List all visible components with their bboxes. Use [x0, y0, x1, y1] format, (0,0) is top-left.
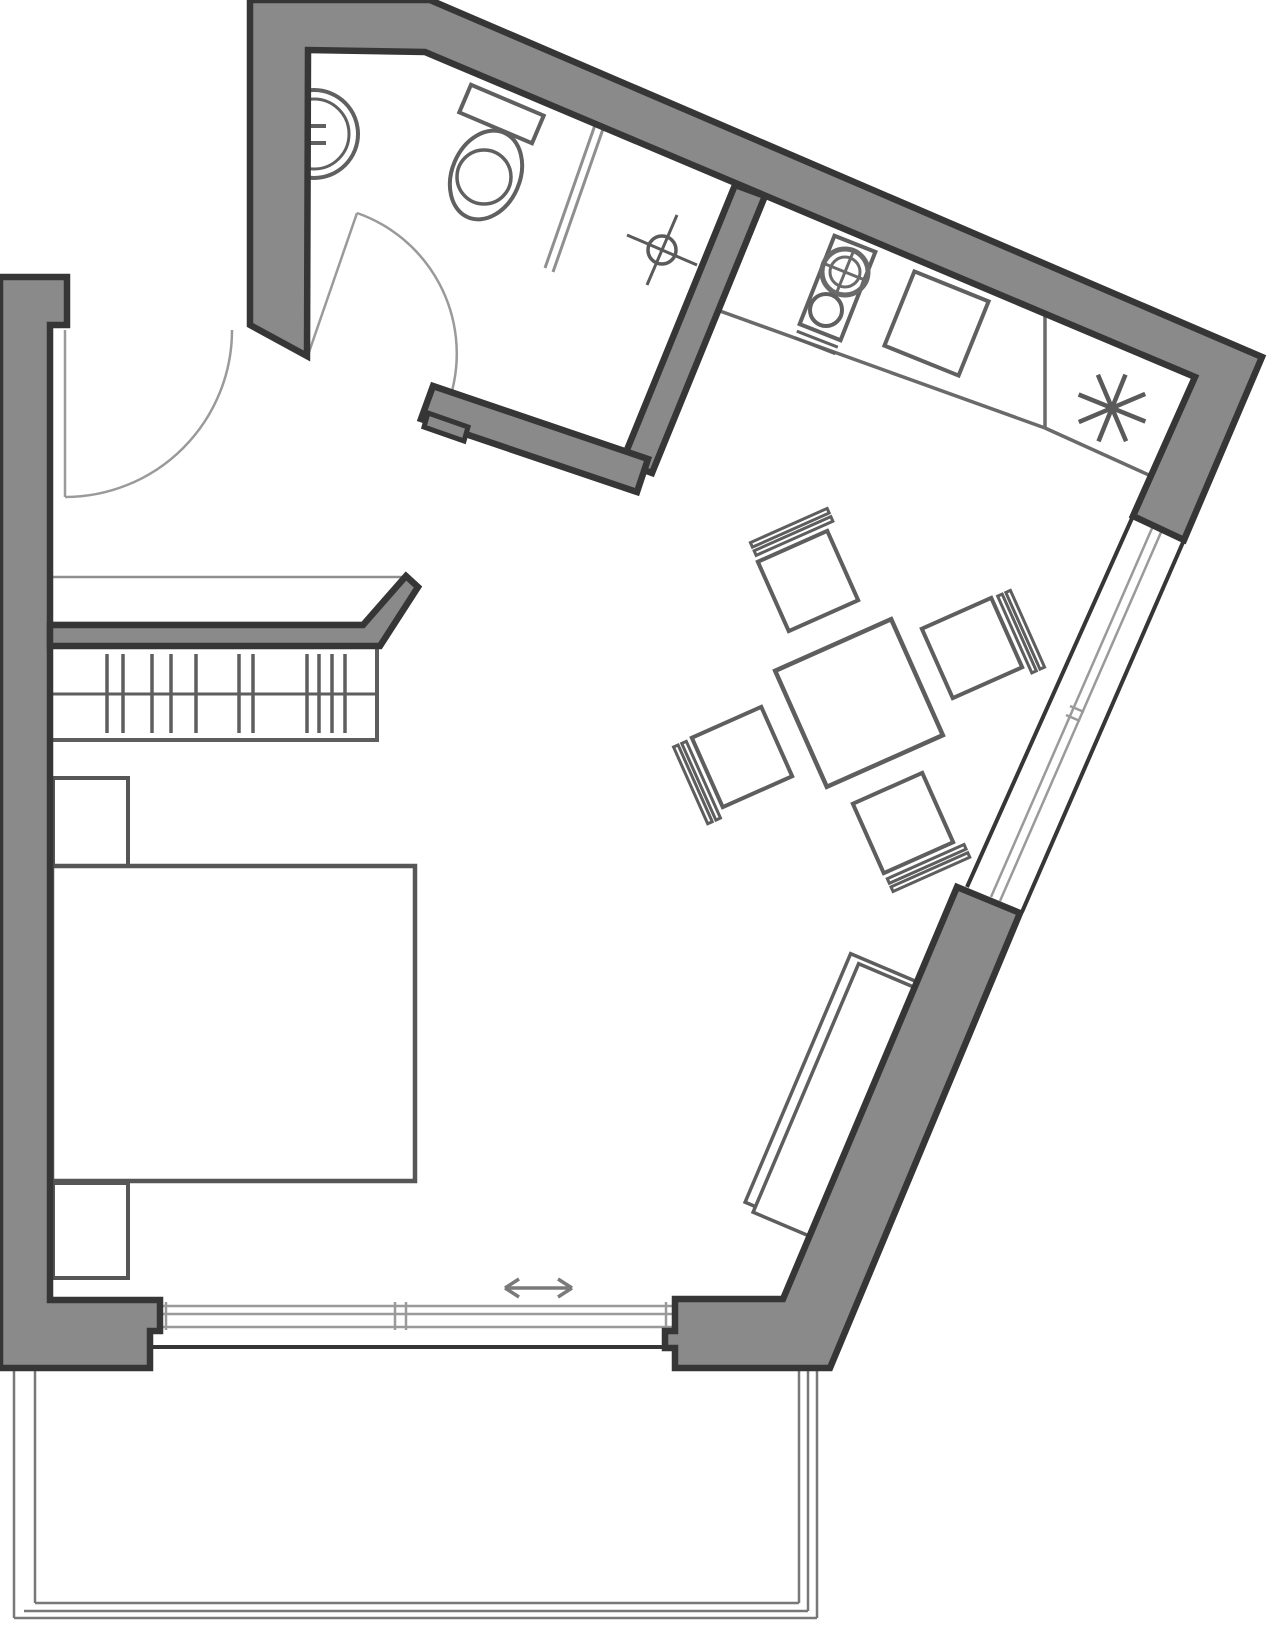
entry-shelf [50, 577, 405, 623]
kitchen-sink-drainer-b [794, 338, 835, 354]
dining-table [775, 619, 943, 787]
floor-plan-svg [0, 0, 1280, 1626]
bed [52, 866, 415, 1181]
kitchen-counter-corner-edge [1045, 428, 1151, 476]
floor-plan [0, 0, 1280, 1626]
right-window-glass-a [991, 526, 1153, 897]
right-window-glass-b [1000, 530, 1162, 901]
nightstand-top [53, 778, 128, 866]
shower-drain-cross-b [647, 215, 677, 285]
kitchen-counter-front-edge [720, 311, 1045, 428]
right-window-inner-frame [967, 516, 1133, 887]
nightstand-bottom [53, 1183, 128, 1278]
right-window-outer-frame [1022, 540, 1184, 912]
kitchen-cooktop [884, 271, 988, 375]
entry-door-arc [65, 330, 232, 497]
toilet-seat [457, 150, 511, 204]
bathroom-door-arc [357, 213, 457, 391]
kitchen-basin [810, 294, 842, 326]
shower-glass-panel-b [553, 129, 603, 272]
wall-shower-kitchen [622, 185, 765, 473]
bathroom-door-leaf [308, 213, 357, 355]
shower-glass-panel-a [545, 125, 595, 268]
